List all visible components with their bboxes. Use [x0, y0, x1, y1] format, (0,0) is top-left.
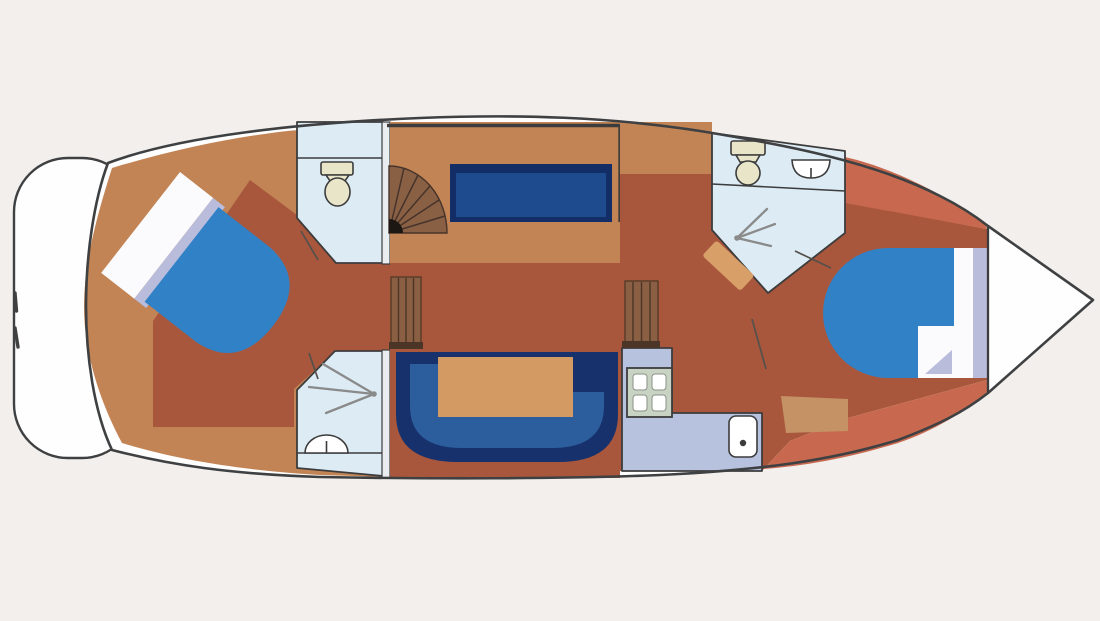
- stove-icon: [627, 368, 672, 417]
- stern-ladder-mark: [15, 293, 17, 311]
- toilet-cistern: [321, 162, 353, 175]
- galley-sink-icon: [729, 416, 757, 457]
- boat-floor-plan: [0, 0, 1100, 621]
- saloon-bench-seat: [450, 164, 612, 222]
- sofa-corner-block: [572, 352, 618, 392]
- forward-berth-pillow-shadow: [973, 248, 988, 378]
- forward-cabin-shelf: [781, 396, 848, 433]
- companionway-ladder-aft: [389, 277, 423, 349]
- bulkhead-aft-lower: [382, 350, 390, 478]
- saloon-table: [438, 357, 573, 417]
- companionway-ladder-forward: [622, 281, 660, 348]
- toilet-bowl: [325, 178, 350, 206]
- deck-plan-canvas: [0, 0, 1100, 621]
- toilet-bowl: [736, 161, 760, 185]
- toilet-cistern: [731, 141, 765, 155]
- saloon: [387, 122, 620, 478]
- bench-cushion: [456, 173, 606, 217]
- saloon-sofa-group: [396, 352, 618, 462]
